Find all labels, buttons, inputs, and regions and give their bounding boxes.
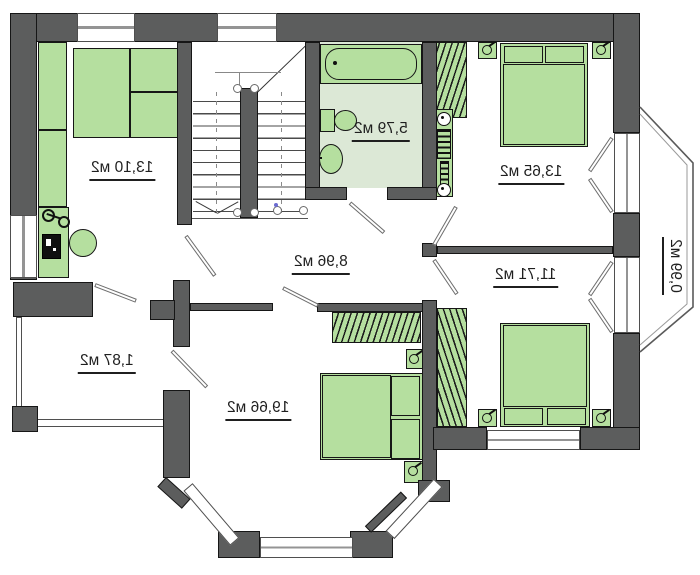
lamp-icon [596, 45, 606, 55]
stair-post [233, 84, 242, 93]
door-swing-bay-right [588, 298, 614, 333]
wall-bedroom-divider [437, 246, 613, 254]
door-swing-bay-right [588, 137, 614, 172]
stairs-bottom-line [192, 218, 308, 219]
pillow [391, 419, 420, 459]
stair-post [250, 84, 259, 93]
wall-bathroom-bottom [305, 187, 347, 200]
room-label-bedroom-top-right: 13,65 м2 [483, 163, 579, 185]
stair-post [273, 206, 282, 215]
bed-blanket [322, 375, 391, 458]
room-label-balcony-right: 0,99 м2 [662, 229, 684, 303]
door-swing-bedroom-top-right [432, 206, 457, 246]
bed-divider [129, 48, 131, 138]
room-label-bedroom-top-left: 13,10 м2 [74, 159, 170, 181]
window-bay-bottom [260, 537, 353, 558]
lamp-icon [482, 45, 492, 55]
exterior-wall-right [613, 213, 640, 257]
toilet-tank-icon [320, 109, 335, 132]
vent-icon [437, 183, 451, 197]
window-bedroom-mid [487, 430, 580, 450]
stair-post [233, 208, 242, 217]
room-label-balcony-left: 1,87 м2 [62, 352, 152, 374]
room-label-bedroom-mid-right: 11,71 м2 [478, 266, 574, 288]
bed-blanket [503, 64, 585, 145]
pillow [504, 408, 543, 425]
door-swing-bedroom-top-left [184, 235, 216, 277]
wall-bathroom-right [422, 42, 437, 200]
door-swing-bay-right [588, 178, 614, 213]
stairs-center-wall [240, 88, 258, 218]
sink-icon [319, 144, 343, 174]
wardrobe-mid-right [437, 308, 467, 427]
window-left [10, 215, 37, 278]
wall-t-junction [173, 280, 190, 347]
stairs-walkline-right [281, 92, 282, 214]
wall-t-junction [150, 300, 175, 320]
balcony-rail [20, 419, 166, 427]
french-door-bay-right-1 [614, 133, 640, 213]
room-label-hall: 8,96 м2 [275, 253, 367, 275]
stair-post [299, 206, 308, 215]
pillow [545, 46, 584, 63]
bed-divider [129, 91, 178, 93]
radiator-icon [437, 129, 451, 159]
vent-icon [437, 112, 451, 126]
floor-plan: 13,10 м2 5,79 м2 13,65 м2 11,71 м2 8,96 … [0, 0, 700, 575]
room-label-bathroom: 5,79 м2 [338, 120, 424, 142]
pillow [504, 46, 543, 63]
wall-balcony-top [13, 282, 93, 317]
wall-bedroom-mid-bottom [433, 427, 487, 450]
lamp-icon [596, 413, 606, 423]
wall-stairs-left [177, 42, 192, 225]
pillow [391, 376, 420, 416]
room-label-bedroom-bottom: 19,66 м2 [210, 399, 307, 421]
stairs-walkline-left [216, 92, 217, 214]
stair-post [250, 208, 259, 217]
exterior-wall-right [613, 13, 640, 133]
bay-corner [350, 531, 393, 558]
stairs-cut-line [257, 44, 308, 93]
door-swing-bay-right [588, 261, 614, 296]
door-swing-bedroom-mid-right [432, 259, 458, 295]
pillow [547, 408, 586, 425]
balcony-rail-post [12, 406, 38, 432]
bathtub-drain [333, 61, 337, 65]
wall-bottom-room-left [163, 390, 190, 478]
wall-hall-bottom [317, 303, 423, 312]
lamp-icon [482, 413, 492, 423]
wall-bedroom-mid-bottom [580, 427, 640, 450]
wall-bathroom-left [305, 42, 320, 200]
office-chair-icon [69, 229, 97, 257]
door-swing-bathroom [349, 201, 386, 234]
lamp-icon [408, 466, 418, 476]
door-swing-bottom-room [282, 286, 319, 307]
bed-top-left [73, 48, 178, 138]
wall-bedroom-mid-left [422, 300, 437, 482]
bathtub-inner [325, 48, 417, 80]
cabinet [38, 42, 67, 130]
computer-icon [42, 234, 61, 259]
lamp-icon [409, 354, 419, 364]
stair-marker-dot [274, 203, 278, 207]
stairs-landing-line [215, 72, 281, 73]
wall-bathroom-bottom [387, 187, 437, 200]
window-top-1 [77, 13, 135, 42]
cabinet [38, 130, 67, 207]
door-swing-bottom-room-balcony [171, 350, 209, 389]
french-door-bay-right-2 [614, 257, 640, 333]
wardrobe-top-right [433, 42, 467, 118]
bed-blanket [503, 325, 587, 407]
wall-hall-bottom [190, 303, 273, 311]
wardrobe-bottom [332, 312, 421, 343]
window-top-2 [217, 13, 277, 42]
window-bay-diagonal-left [183, 483, 239, 546]
door-swing-balcony-left [94, 283, 137, 303]
